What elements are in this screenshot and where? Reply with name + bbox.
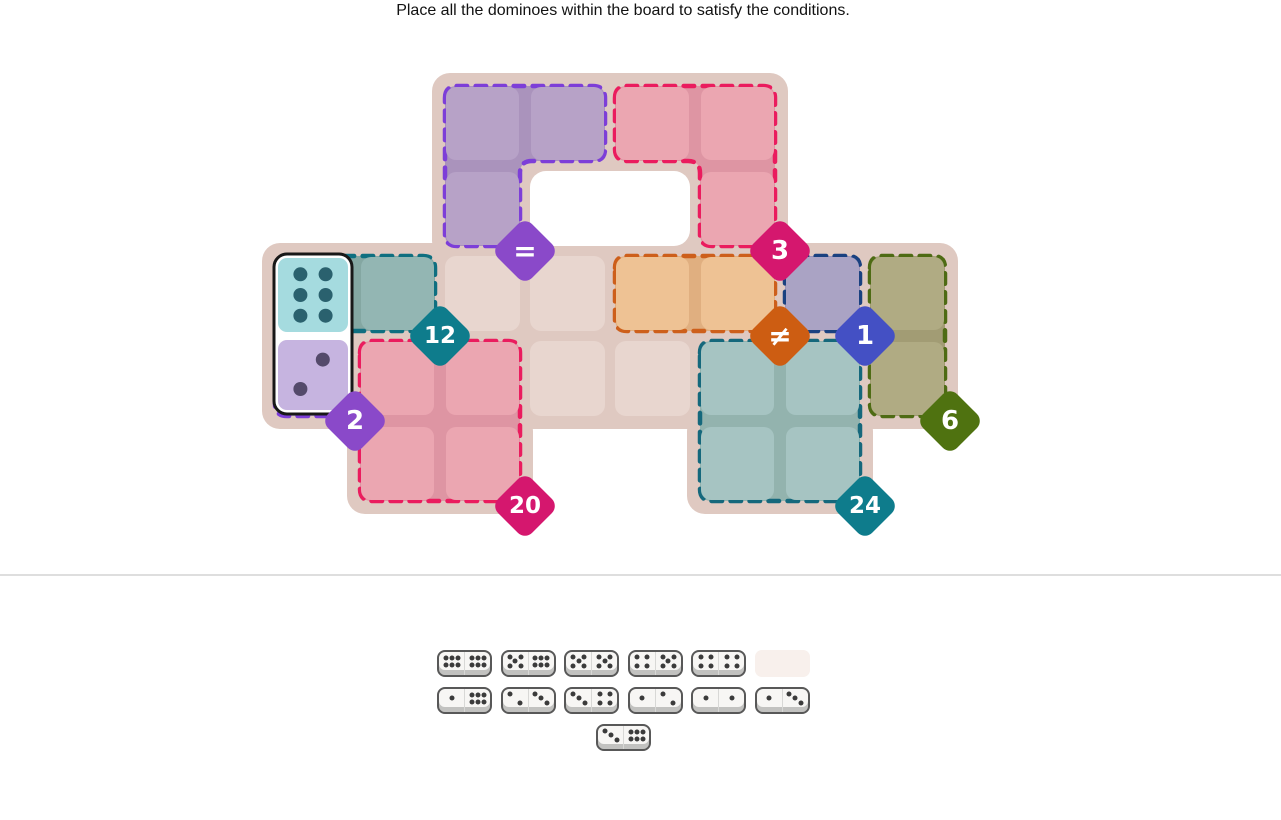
domino-half-1 xyxy=(630,689,655,712)
pip xyxy=(671,700,676,705)
domino-2-3[interactable] xyxy=(501,687,556,714)
pip xyxy=(571,663,576,668)
badge-label: 24 xyxy=(849,493,881,519)
pip xyxy=(481,663,486,668)
pip xyxy=(724,663,729,668)
pip xyxy=(507,654,512,659)
placed-domino-half-top xyxy=(278,258,348,332)
domino-half-5 xyxy=(566,652,591,675)
pip xyxy=(645,655,650,660)
board-cell-4-3[interactable] xyxy=(615,341,690,416)
pip xyxy=(635,663,640,668)
pip xyxy=(729,696,734,701)
placed-domino-6-2[interactable] xyxy=(274,254,352,414)
domino-half-3 xyxy=(528,689,554,712)
pip xyxy=(628,737,633,742)
pip xyxy=(455,655,460,660)
pip xyxy=(597,663,602,668)
pip xyxy=(293,288,307,302)
domino-1-3[interactable] xyxy=(755,687,810,714)
pip xyxy=(734,663,739,668)
domino-half-6 xyxy=(464,652,490,675)
badge-label: 3 xyxy=(771,236,789,266)
pip xyxy=(518,654,523,659)
board-cell-4-0[interactable] xyxy=(616,87,689,160)
pip xyxy=(449,696,454,701)
pip xyxy=(661,692,666,697)
domino-6-6[interactable] xyxy=(437,650,492,677)
pip xyxy=(708,655,713,660)
pip xyxy=(545,700,550,705)
pip xyxy=(481,655,486,660)
pip xyxy=(481,692,486,697)
pip xyxy=(518,663,523,668)
domino-half-3 xyxy=(566,689,591,712)
pip xyxy=(608,654,613,659)
domino-half-1 xyxy=(757,689,782,712)
pip xyxy=(475,692,480,697)
pip xyxy=(319,288,333,302)
pip xyxy=(539,655,544,660)
pip xyxy=(640,729,645,734)
board-cell-5-4[interactable] xyxy=(701,427,774,500)
pip xyxy=(533,655,538,660)
pip xyxy=(608,733,613,738)
domino-5-5[interactable] xyxy=(564,650,619,677)
pip xyxy=(475,663,480,668)
pip xyxy=(614,737,619,742)
pip xyxy=(640,737,645,742)
pip xyxy=(660,654,665,659)
pip xyxy=(607,700,612,705)
pip xyxy=(545,663,550,668)
pip xyxy=(582,663,587,668)
pip xyxy=(469,692,474,697)
pip xyxy=(455,663,460,668)
pip xyxy=(475,655,480,660)
domino-half-4 xyxy=(630,652,655,675)
pip xyxy=(481,700,486,705)
pip xyxy=(469,700,474,705)
puzzle-board: =312≠1262024 xyxy=(0,0,1281,600)
domino-5-6[interactable] xyxy=(501,650,556,677)
pip xyxy=(597,700,602,705)
board-cell-3-3[interactable] xyxy=(530,341,605,416)
pip xyxy=(597,692,602,697)
pip xyxy=(469,655,474,660)
pip xyxy=(660,663,665,668)
pip xyxy=(518,700,523,705)
pip xyxy=(293,267,307,281)
domino-half-6 xyxy=(528,652,554,675)
pip xyxy=(671,663,676,668)
pip xyxy=(787,691,792,696)
empty-domino-slot[interactable] xyxy=(755,650,810,677)
domino-1-1[interactable] xyxy=(691,687,746,714)
pip xyxy=(698,655,703,660)
pip xyxy=(799,700,804,705)
badge-label: 6 xyxy=(941,406,959,436)
pip xyxy=(316,353,330,367)
pip xyxy=(607,692,612,697)
pip xyxy=(793,696,798,701)
badge-label: 1 xyxy=(856,321,874,351)
pip xyxy=(449,655,454,660)
pip xyxy=(571,654,576,659)
domino-1-2[interactable] xyxy=(628,687,683,714)
domino-half-1 xyxy=(693,689,718,712)
pip xyxy=(508,692,513,697)
pip xyxy=(634,729,639,734)
pip xyxy=(628,729,633,734)
pip xyxy=(724,655,729,660)
domino-half-5 xyxy=(591,652,617,675)
pip xyxy=(545,655,550,660)
badge-label: 12 xyxy=(424,323,456,349)
pip xyxy=(608,663,613,668)
pip xyxy=(698,663,703,668)
badge-label: ≠ xyxy=(768,320,791,353)
pip xyxy=(449,663,454,668)
domino-half-6 xyxy=(439,652,464,675)
domino-half-4 xyxy=(718,652,744,675)
board-cell-2-0[interactable] xyxy=(446,87,519,160)
domino-half-2 xyxy=(655,689,681,712)
domino-half-4 xyxy=(591,689,617,712)
badge-label: 20 xyxy=(509,493,541,519)
domino-4-5[interactable] xyxy=(628,650,683,677)
pip xyxy=(443,663,448,668)
pip xyxy=(533,691,538,696)
badge-label: = xyxy=(513,235,536,268)
pip xyxy=(703,696,708,701)
domino-half-3 xyxy=(598,726,623,749)
domino-1-6[interactable] xyxy=(437,687,492,714)
pip xyxy=(513,659,518,664)
pip xyxy=(597,654,602,659)
pip xyxy=(767,696,772,701)
domino-half-6 xyxy=(623,726,649,749)
pip xyxy=(319,267,333,281)
pip xyxy=(734,655,739,660)
pip xyxy=(666,659,671,664)
pip xyxy=(539,663,544,668)
board-cell-5-0[interactable] xyxy=(701,87,774,160)
pip xyxy=(582,654,587,659)
domino-half-5 xyxy=(655,652,681,675)
pip xyxy=(443,655,448,660)
pip xyxy=(475,700,480,705)
domino-half-2 xyxy=(503,689,528,712)
domino-4-4[interactable] xyxy=(691,650,746,677)
pip xyxy=(576,696,581,701)
pip xyxy=(570,691,575,696)
pip xyxy=(602,659,607,664)
pip xyxy=(576,659,581,664)
pip xyxy=(533,663,538,668)
pip xyxy=(469,663,474,668)
domino-3-4[interactable] xyxy=(564,687,619,714)
pips-puzzle-page: Place all the dominoes within the board … xyxy=(0,0,1281,820)
pip xyxy=(640,696,645,701)
pip xyxy=(634,737,639,742)
badge-label: 2 xyxy=(346,406,364,436)
section-divider xyxy=(0,574,1281,576)
pip xyxy=(708,663,713,668)
pip xyxy=(645,663,650,668)
board-cell-3-0[interactable] xyxy=(531,87,604,160)
pip xyxy=(319,309,333,323)
domino-half-3 xyxy=(782,689,808,712)
placed-domino-half-bottom xyxy=(278,340,348,410)
domino-half-6 xyxy=(464,689,490,712)
pip xyxy=(582,700,587,705)
pip xyxy=(671,654,676,659)
domino-half-5 xyxy=(503,652,528,675)
pip xyxy=(507,663,512,668)
domino-half-1 xyxy=(439,689,464,712)
board-cell-4-2[interactable] xyxy=(616,257,689,330)
pip xyxy=(539,696,544,701)
pip xyxy=(293,382,307,396)
domino-3-6[interactable] xyxy=(596,724,651,751)
domino-half-4 xyxy=(693,652,718,675)
board-hole xyxy=(530,171,690,246)
pip xyxy=(602,728,607,733)
domino-half-1 xyxy=(718,689,744,712)
pip xyxy=(293,309,307,323)
pip xyxy=(635,655,640,660)
